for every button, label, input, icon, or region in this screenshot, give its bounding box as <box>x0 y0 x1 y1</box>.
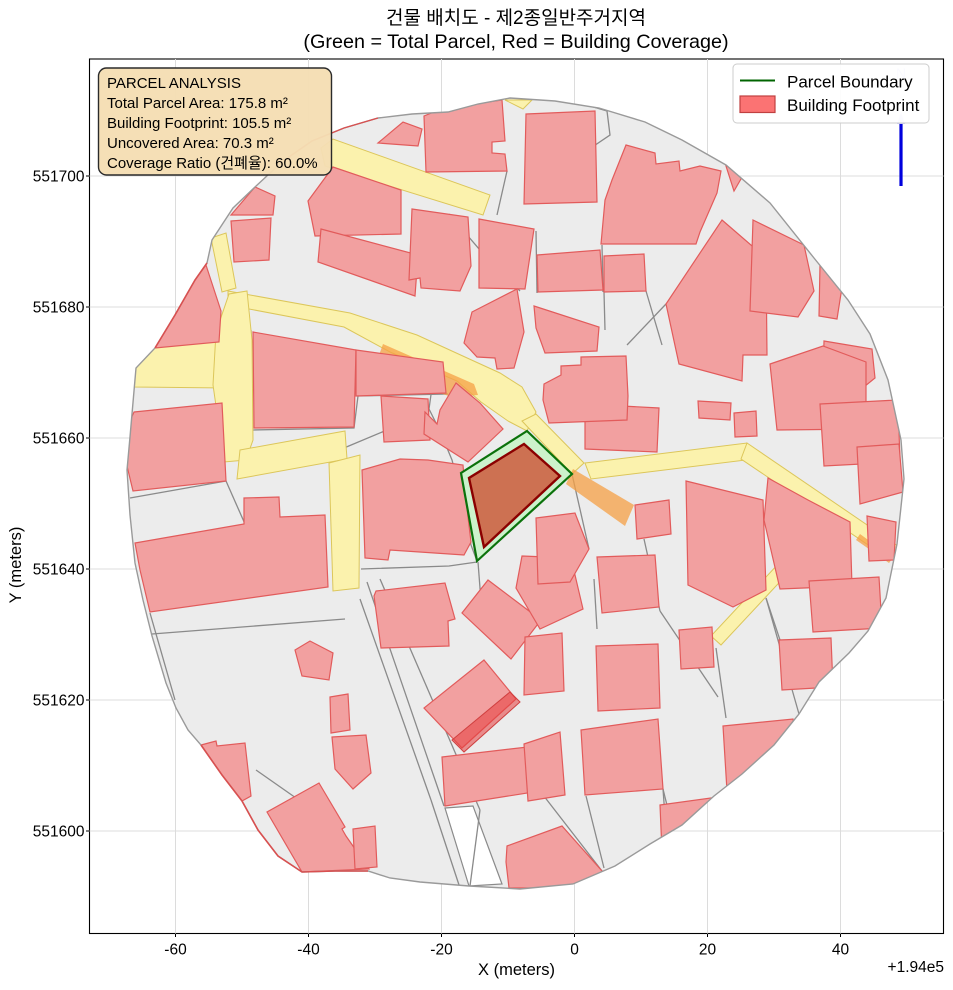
svg-text:551640: 551640 <box>33 562 85 579</box>
svg-text:551700: 551700 <box>33 169 85 186</box>
svg-text:Building Footprint: 105.5 m²: Building Footprint: 105.5 m² <box>107 115 291 132</box>
svg-text:Parcel Boundary: Parcel Boundary <box>787 73 913 92</box>
svg-text:건물 배치도 - 제2종일반주거지역: 건물 배치도 - 제2종일반주거지역 <box>386 7 646 29</box>
svg-text:551680: 551680 <box>33 300 85 317</box>
svg-text:Coverage Ratio (건폐율): 60.0%: Coverage Ratio (건폐율): 60.0% <box>107 155 318 172</box>
svg-text:-60: -60 <box>164 942 187 959</box>
svg-text:(Green = Total Parcel, Red = B: (Green = Total Parcel, Red = Building Co… <box>303 31 728 53</box>
svg-text:551660: 551660 <box>33 431 85 448</box>
svg-text:Y (meters): Y (meters) <box>7 527 25 604</box>
svg-text:0: 0 <box>570 942 579 959</box>
svg-text:Total Parcel Area: 175.8 m²: Total Parcel Area: 175.8 m² <box>107 95 288 112</box>
svg-text:-20: -20 <box>430 942 453 959</box>
svg-text:20: 20 <box>699 942 717 959</box>
svg-text:40: 40 <box>832 942 850 959</box>
svg-text:Uncovered Area: 70.3 m²: Uncovered Area: 70.3 m² <box>107 135 274 152</box>
svg-text:PARCEL ANALYSIS: PARCEL ANALYSIS <box>107 75 241 92</box>
svg-text:551600: 551600 <box>33 824 85 841</box>
svg-text:-40: -40 <box>297 942 320 959</box>
svg-text:551620: 551620 <box>33 693 85 710</box>
svg-text:Building Footprint: Building Footprint <box>787 96 920 115</box>
svg-text:X (meters): X (meters) <box>478 961 555 979</box>
svg-text:+1.94e5: +1.94e5 <box>888 959 944 976</box>
